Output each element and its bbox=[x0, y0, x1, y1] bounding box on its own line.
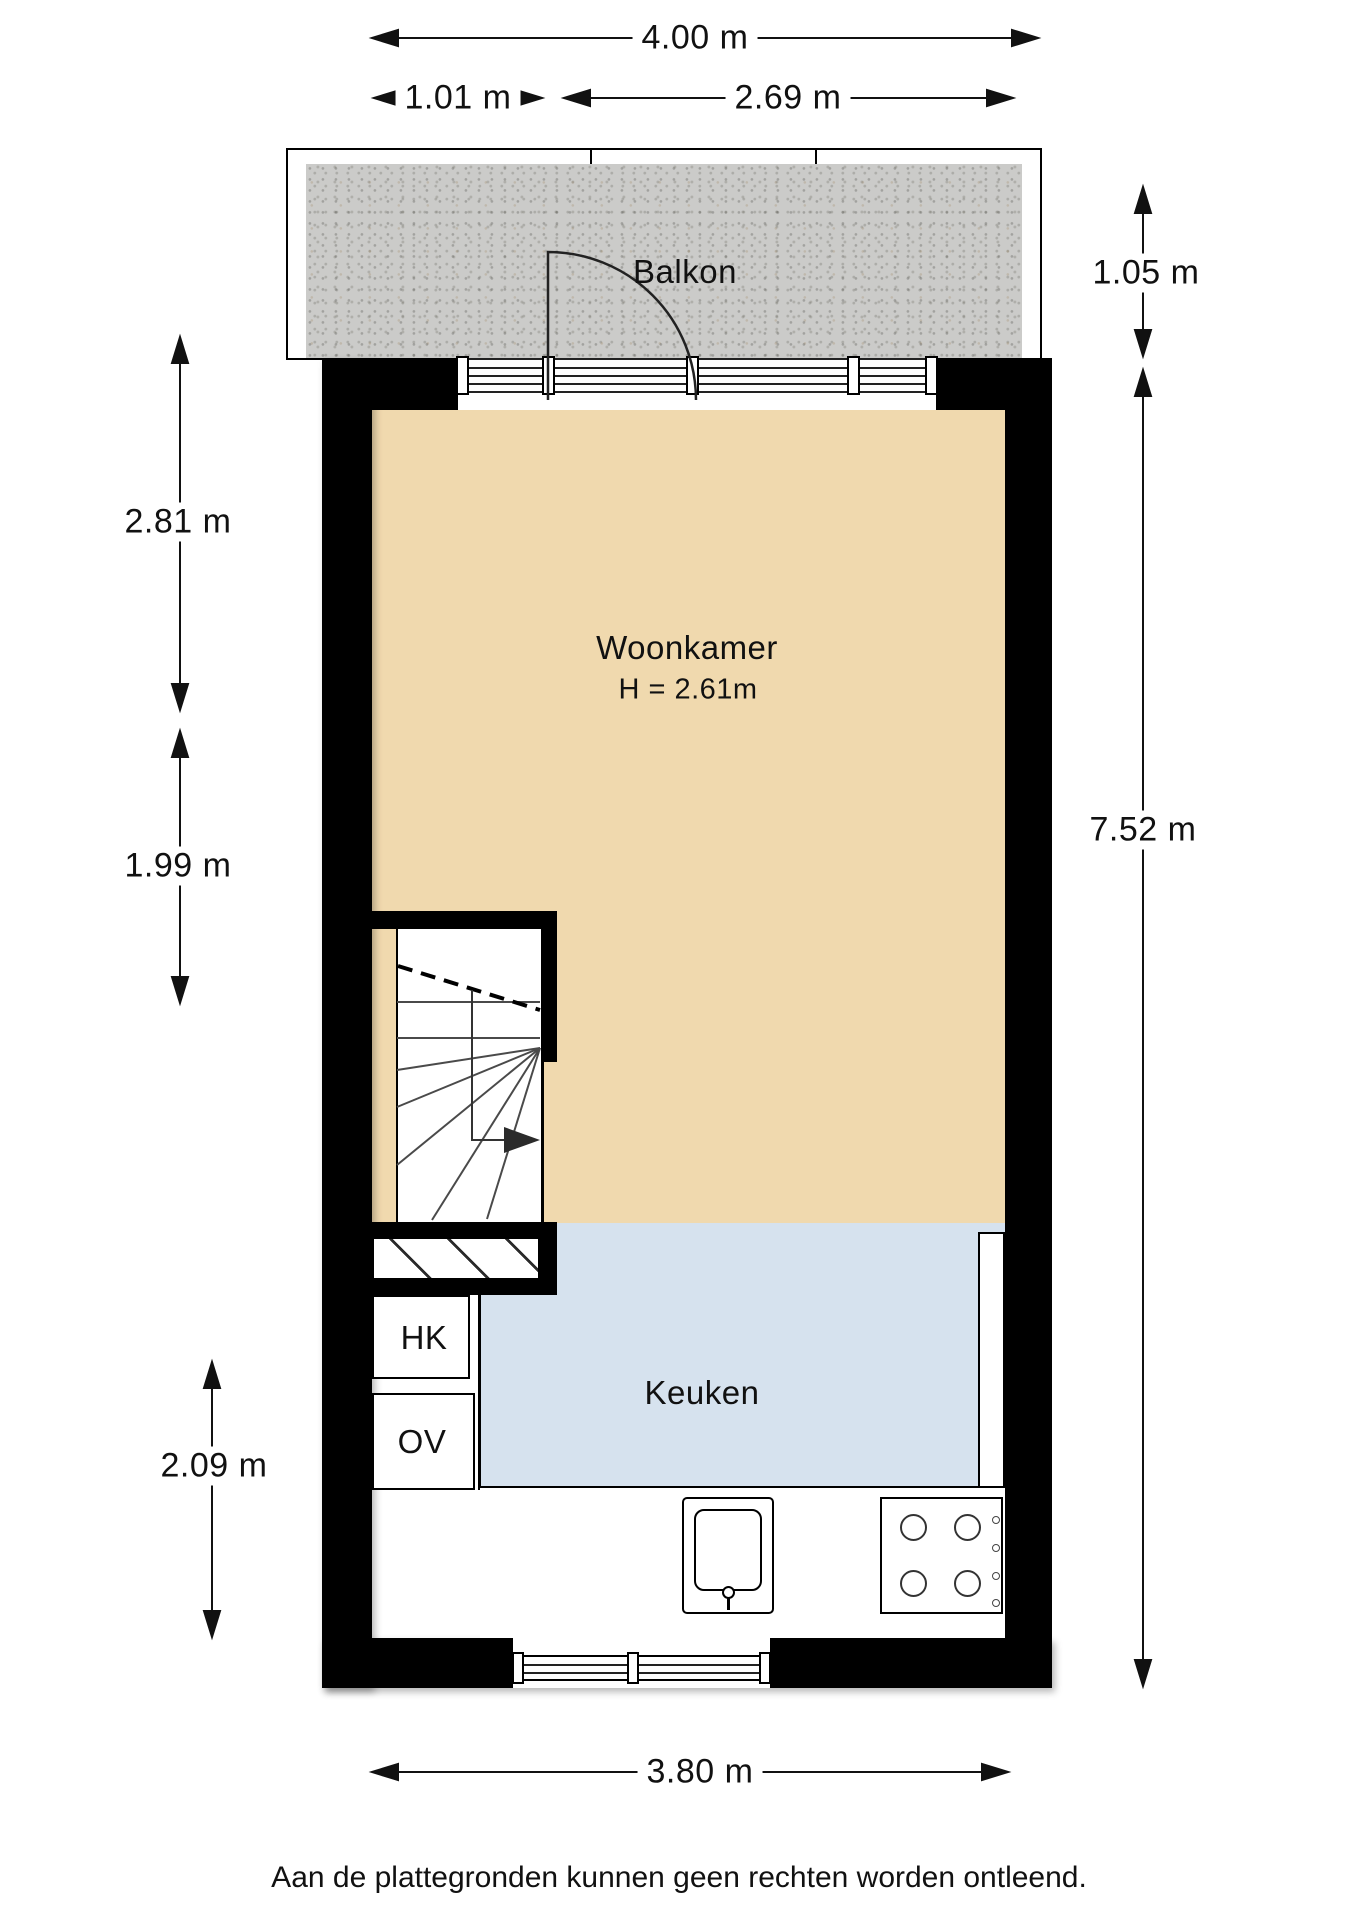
stair-direction-arrow-icon bbox=[504, 1127, 540, 1153]
dim-top-right-label: 2.69 m bbox=[726, 79, 851, 118]
dim-left-lower-line bbox=[204, 1362, 220, 1637]
stair-treads bbox=[397, 1002, 540, 1220]
stair-cut-line bbox=[398, 966, 540, 1010]
room-label-kitchen: Keuken bbox=[645, 1374, 760, 1412]
dim-top-left-label: 1.01 m bbox=[396, 79, 521, 118]
room-label-living-height: H = 2.61m bbox=[618, 674, 757, 707]
dim-balcony-depth-label: 1.05 m bbox=[1084, 254, 1209, 293]
room-label-balcony: Balkon bbox=[633, 253, 737, 291]
room-label-living: Woonkamer bbox=[596, 629, 778, 667]
dim-right-total-label: 7.52 m bbox=[1081, 811, 1206, 850]
closet-label-hk: HK bbox=[401, 1319, 448, 1357]
disclaimer-text: Aan de plattegronden kunnen geen rechten… bbox=[271, 1861, 1087, 1895]
closet-label-ov: OV bbox=[398, 1423, 447, 1461]
dim-bottom-label: 3.80 m bbox=[638, 1753, 763, 1792]
floor-plan-canvas: 4.00 m 1.01 m 2.69 m 1.05 m 7.52 m 2.81 … bbox=[0, 0, 1358, 1920]
dim-left-upper-label: 2.81 m bbox=[116, 503, 241, 542]
dim-right-total-line bbox=[1135, 370, 1151, 1686]
dim-top-total-label: 4.00 m bbox=[633, 19, 758, 58]
dim-left-middle-label: 1.99 m bbox=[116, 847, 241, 886]
dim-left-lower-label: 2.09 m bbox=[152, 1447, 277, 1486]
